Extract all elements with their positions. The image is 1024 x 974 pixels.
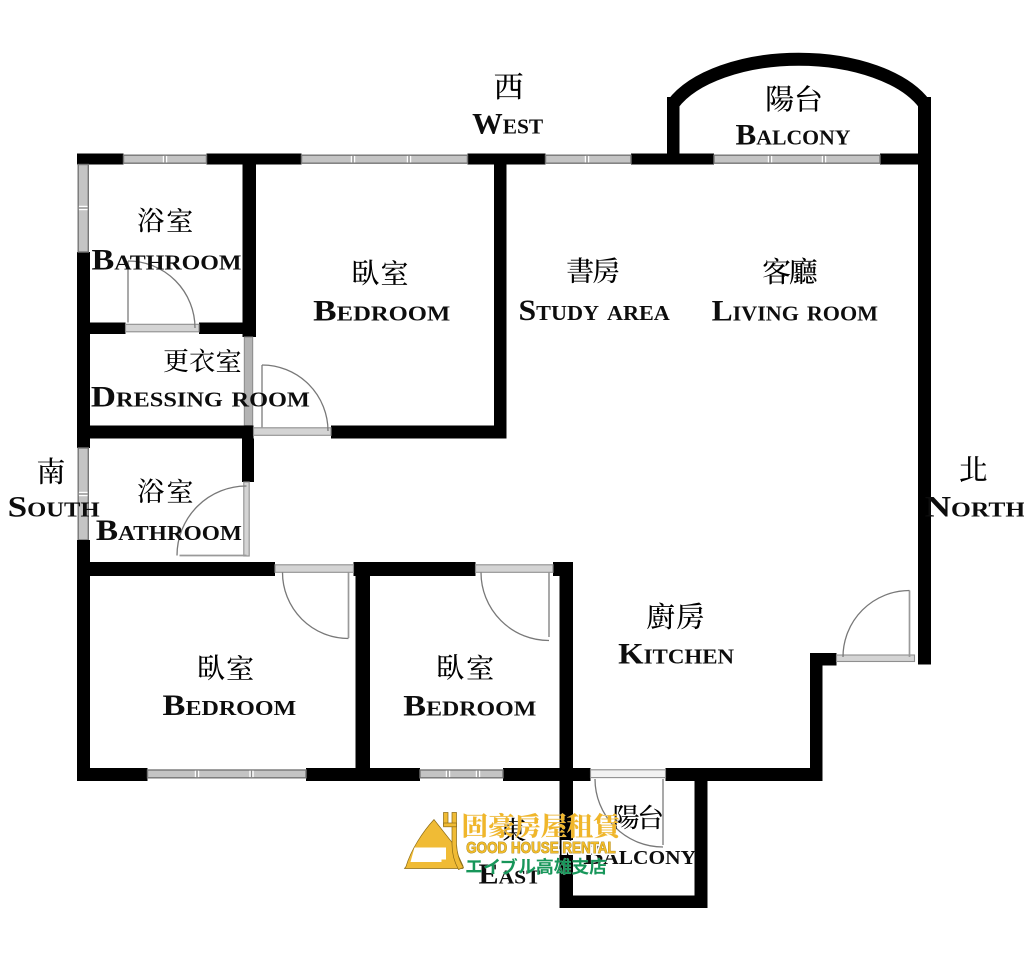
svg-text:West: West (472, 107, 543, 140)
svg-text:Balcony: Balcony (736, 119, 851, 152)
svg-text:Bathroom: Bathroom (92, 243, 242, 276)
svg-text:East: East (479, 860, 542, 891)
svg-text:North: North (925, 491, 1024, 524)
svg-text:Dressing room: Dressing room (91, 381, 310, 414)
svg-text:Living room: Living room (712, 295, 879, 328)
svg-text:Bedroom: Bedroom (313, 294, 450, 327)
svg-text:GOOD HOUSE RENTAL: GOOD HOUSE RENTAL (466, 840, 616, 857)
svg-text:Bedroom: Bedroom (163, 689, 297, 722)
svg-text:Kitchen: Kitchen (618, 638, 734, 671)
svg-text:Bathroom: Bathroom (96, 514, 242, 547)
svg-text:Bedroom: Bedroom (403, 689, 536, 722)
svg-text:Study area: Study area (519, 294, 671, 327)
svg-text:South: South (8, 490, 100, 523)
